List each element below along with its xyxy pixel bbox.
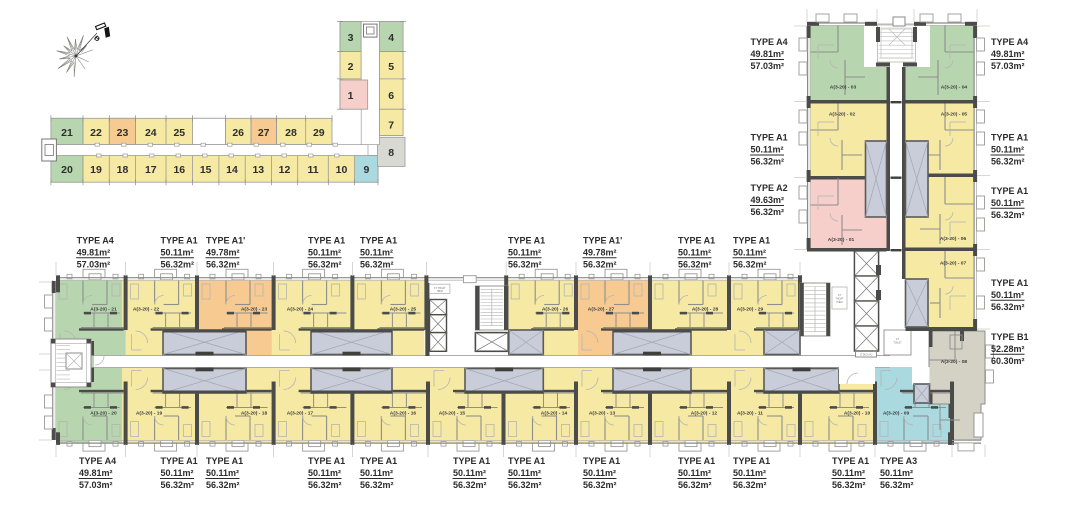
svg-text:TYPE A1: TYPE A1 — [733, 236, 770, 246]
svg-text:57.03m²: 57.03m² — [991, 61, 1025, 71]
svg-text:52.28m²: 52.28m² — [991, 344, 1025, 354]
svg-text:49.81m²: 49.81m² — [751, 49, 785, 59]
svg-text:TYPE A3: TYPE A3 — [880, 456, 917, 466]
svg-text:4: 4 — [388, 32, 394, 44]
svg-text:TYPE A1: TYPE A1 — [751, 133, 788, 143]
svg-text:1: 1 — [348, 90, 354, 102]
svg-text:50.11m²: 50.11m² — [360, 248, 393, 258]
svg-text:TYPE A1: TYPE A1 — [206, 456, 243, 466]
svg-text:56.32m²: 56.32m² — [991, 210, 1025, 220]
svg-text:56.32m²: 56.32m² — [991, 157, 1025, 167]
svg-text:HIỂM: HIỂM — [837, 301, 843, 304]
svg-text:56.32m²: 56.32m² — [832, 480, 866, 490]
svg-text:TYPE B1: TYPE B1 — [991, 332, 1029, 342]
svg-text:19: 19 — [90, 164, 102, 176]
svg-text:50.11m²: 50.11m² — [583, 468, 616, 478]
svg-text:56.32m²: 56.32m² — [583, 260, 617, 270]
svg-text:TOILET: TOILET — [893, 341, 902, 344]
svg-text:49.81m²: 49.81m² — [991, 49, 1025, 59]
svg-text:TYPE A1: TYPE A1 — [733, 456, 770, 466]
svg-text:TYPE A1: TYPE A1 — [583, 456, 620, 466]
svg-text:A(3-20) - 10: A(3-20) - 10 — [844, 410, 871, 416]
svg-text:56.32m²: 56.32m² — [508, 480, 542, 490]
svg-text:A(3-20) - 24: A(3-20) - 24 — [287, 307, 314, 313]
svg-text:24: 24 — [145, 127, 157, 139]
svg-text:A(3-20) - 09: A(3-20) - 09 — [883, 410, 910, 416]
svg-text:57.03m²: 57.03m² — [751, 61, 785, 71]
svg-text:A(3-20) - 28: A(3-20) - 28 — [692, 307, 719, 313]
svg-text:50.11m²: 50.11m² — [508, 248, 541, 258]
svg-text:A(3-20) - 29: A(3-20) - 29 — [737, 307, 764, 313]
svg-text:29: 29 — [313, 127, 325, 139]
svg-text:20: 20 — [61, 164, 73, 176]
svg-text:A(3-20) - 27: A(3-20) - 27 — [588, 307, 615, 313]
svg-text:50.11m²: 50.11m² — [508, 468, 541, 478]
svg-text:56.32m²: 56.32m² — [678, 480, 712, 490]
svg-text:50.11m²: 50.11m² — [751, 145, 784, 155]
svg-text:25: 25 — [173, 127, 185, 139]
svg-text:50.11m²: 50.11m² — [161, 468, 194, 478]
svg-text:HIỂM: HIỂM — [437, 290, 443, 293]
svg-text:27: 27 — [258, 127, 270, 139]
svg-text:50.11m²: 50.11m² — [308, 468, 341, 478]
svg-text:49.81m²: 49.81m² — [77, 248, 111, 258]
svg-text:TYPE A1: TYPE A1 — [832, 456, 869, 466]
svg-text:A(3-20) - 23: A(3-20) - 23 — [241, 307, 268, 313]
svg-text:56.32m²: 56.32m² — [360, 260, 394, 270]
svg-text:56.32m²: 56.32m² — [880, 480, 914, 490]
svg-text:18: 18 — [117, 164, 129, 176]
svg-text:50.11m²: 50.11m² — [360, 468, 393, 478]
svg-text:11: 11 — [307, 164, 318, 176]
svg-text:TYPE A4: TYPE A4 — [751, 37, 788, 47]
svg-text:3: 3 — [348, 32, 354, 44]
svg-text:16: 16 — [173, 164, 185, 176]
svg-text:26: 26 — [232, 127, 244, 139]
svg-text:50.11m²: 50.11m² — [991, 290, 1024, 300]
svg-text:TYPE A4: TYPE A4 — [79, 456, 116, 466]
svg-text:TYPE A1: TYPE A1 — [308, 236, 345, 246]
svg-text:A(3-20) - 12: A(3-20) - 12 — [691, 410, 718, 416]
svg-text:TYPE A1': TYPE A1' — [583, 236, 622, 246]
svg-text:7: 7 — [388, 120, 394, 132]
svg-text:22: 22 — [90, 127, 102, 139]
svg-text:23: 23 — [117, 127, 129, 139]
svg-text:A(3-20) - 19: A(3-20) - 19 — [136, 410, 163, 416]
svg-text:A(3-20) - 13: A(3-20) - 13 — [589, 410, 616, 416]
svg-text:A(3-20) - 01: A(3-20) - 01 — [828, 237, 855, 243]
svg-text:56.32m²: 56.32m² — [678, 260, 712, 270]
svg-text:21: 21 — [61, 127, 73, 139]
svg-text:56.32m²: 56.32m² — [206, 480, 240, 490]
svg-text:A(3-20) - 18: A(3-20) - 18 — [241, 410, 268, 416]
svg-text:A(3-20) - 08: A(3-20) - 08 — [941, 359, 968, 365]
svg-text:50.11m²: 50.11m² — [206, 468, 239, 478]
svg-text:TYPE A1: TYPE A1 — [360, 236, 397, 246]
svg-text:56.32m²: 56.32m² — [308, 260, 342, 270]
svg-text:50.11m²: 50.11m² — [453, 468, 486, 478]
svg-text:8: 8 — [388, 147, 394, 159]
svg-text:9: 9 — [363, 164, 369, 176]
svg-text:A(3-20) - 05: A(3-20) - 05 — [941, 111, 968, 117]
svg-text:49.63m²: 49.63m² — [751, 195, 785, 205]
svg-text:12: 12 — [279, 164, 291, 176]
svg-text:A(3-20) - 15: A(3-20) - 15 — [439, 410, 466, 416]
svg-text:TYPE A1: TYPE A1 — [453, 456, 490, 466]
svg-text:15: 15 — [200, 164, 212, 176]
svg-text:56.32m²: 56.32m² — [453, 480, 487, 490]
svg-text:56.32m²: 56.32m² — [161, 260, 195, 270]
svg-text:49.78m²: 49.78m² — [206, 248, 240, 258]
svg-text:50.11m²: 50.11m² — [161, 248, 194, 258]
svg-text:28: 28 — [285, 127, 297, 139]
svg-text:50.11m²: 50.11m² — [991, 198, 1024, 208]
svg-text:TYPE A1: TYPE A1 — [991, 278, 1028, 288]
svg-text:56.32m²: 56.32m² — [206, 260, 240, 270]
svg-text:A(3-20) - 22: A(3-20) - 22 — [133, 307, 160, 313]
svg-text:49.81m²: 49.81m² — [79, 468, 113, 478]
svg-text:TYPE A1: TYPE A1 — [991, 186, 1028, 196]
svg-text:A(3-20) - 21: A(3-20) - 21 — [90, 307, 117, 313]
svg-text:56.32m²: 56.32m² — [733, 480, 767, 490]
svg-text:TYPE A1: TYPE A1 — [508, 236, 545, 246]
svg-text:LT DỊCH VỤ: LT DỊCH VỤ — [860, 355, 873, 357]
svg-text:2: 2 — [348, 61, 354, 73]
svg-text:50.11m²: 50.11m² — [678, 248, 711, 258]
svg-text:A(3-20) - 16: A(3-20) - 16 — [390, 410, 417, 416]
svg-text:49.78m²: 49.78m² — [583, 248, 617, 258]
svg-text:TYPE A1: TYPE A1 — [678, 456, 715, 466]
svg-text:56.32m²: 56.32m² — [508, 260, 542, 270]
svg-text:A(3-20) - 07: A(3-20) - 07 — [940, 261, 967, 267]
svg-text:A(3-20) - 20: A(3-20) - 20 — [90, 410, 117, 416]
svg-text:KT: KT — [838, 294, 842, 297]
svg-text:17: 17 — [145, 164, 157, 176]
svg-text:TYPE A1: TYPE A1 — [161, 236, 198, 246]
svg-text:50.11m²: 50.11m² — [678, 468, 711, 478]
svg-text:A(3-20) - 14: A(3-20) - 14 — [541, 410, 568, 416]
svg-text:TYPE A2: TYPE A2 — [751, 183, 788, 193]
svg-text:THOÁT: THOÁT — [835, 297, 844, 300]
svg-text:56.32m²: 56.32m² — [308, 480, 342, 490]
svg-text:56.32m²: 56.32m² — [733, 260, 767, 270]
svg-text:56.32m²: 56.32m² — [751, 207, 785, 217]
svg-text:57.03m²: 57.03m² — [77, 260, 111, 270]
svg-text:TYPE A1: TYPE A1 — [360, 456, 397, 466]
svg-text:13: 13 — [252, 164, 264, 176]
svg-text:50.11m²: 50.11m² — [832, 468, 865, 478]
svg-text:56.32m²: 56.32m² — [360, 480, 394, 490]
svg-text:14: 14 — [226, 164, 238, 176]
svg-text:A(3-20) - 06: A(3-20) - 06 — [940, 236, 967, 242]
svg-text:50.11m²: 50.11m² — [733, 248, 766, 258]
svg-text:TYPE A1: TYPE A1 — [508, 456, 545, 466]
svg-text:56.32m²: 56.32m² — [751, 157, 785, 167]
svg-text:TYPE A1: TYPE A1 — [678, 236, 715, 246]
svg-text:6: 6 — [388, 90, 394, 102]
svg-text:50.11m²: 50.11m² — [880, 468, 913, 478]
svg-text:TYPE A1': TYPE A1' — [206, 236, 245, 246]
svg-text:50.11m²: 50.11m² — [733, 468, 766, 478]
svg-text:TYPE A1: TYPE A1 — [308, 456, 345, 466]
svg-text:56.32m²: 56.32m² — [991, 302, 1025, 312]
svg-text:A(3-20) - 02: A(3-20) - 02 — [829, 111, 856, 117]
svg-text:TYPE A4: TYPE A4 — [991, 37, 1028, 47]
svg-text:10: 10 — [336, 164, 348, 176]
svg-text:A(3-20) - 04: A(3-20) - 04 — [941, 84, 968, 90]
svg-text:50.11m²: 50.11m² — [991, 145, 1024, 155]
svg-text:A(3-20) - 26: A(3-20) - 26 — [542, 307, 569, 313]
svg-text:60.30m²: 60.30m² — [991, 356, 1025, 366]
svg-text:5: 5 — [388, 61, 394, 73]
svg-text:TYPE A4: TYPE A4 — [77, 236, 114, 246]
svg-text:50.11m²: 50.11m² — [308, 248, 341, 258]
svg-text:TYPE A1: TYPE A1 — [161, 456, 198, 466]
svg-text:A(3-20) - 03: A(3-20) - 03 — [830, 84, 857, 90]
svg-text:KT THOÁT: KT THOÁT — [434, 287, 446, 290]
svg-text:KT: KT — [896, 338, 900, 341]
svg-text:56.32m²: 56.32m² — [161, 480, 195, 490]
svg-text:57.03m²: 57.03m² — [79, 480, 113, 490]
svg-text:A(3-20) - 11: A(3-20) - 11 — [737, 410, 763, 416]
svg-text:TYPE A1: TYPE A1 — [991, 133, 1028, 143]
svg-text:A(3-20) - 25: A(3-20) - 25 — [390, 307, 417, 313]
svg-text:56.32m²: 56.32m² — [583, 480, 617, 490]
svg-text:A(3-20) - 17: A(3-20) - 17 — [287, 410, 314, 416]
